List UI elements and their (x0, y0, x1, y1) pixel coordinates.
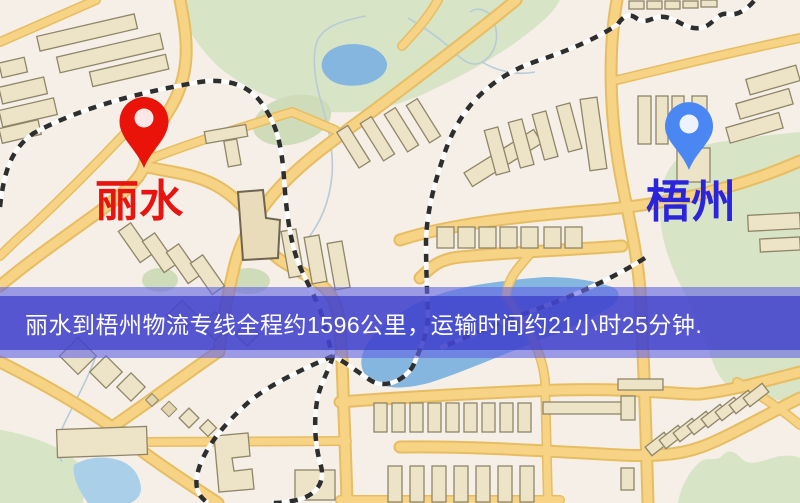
route-banner-band: 丽水到梧州物流专线全程约1596公里，运输时间约21小时25分钟. (0, 296, 800, 350)
route-banner: 丽水到梧州物流专线全程约1596公里，运输时间约21小时25分钟. (0, 287, 800, 358)
destination-pin-hole (680, 115, 699, 134)
origin-pin-hole (135, 109, 154, 128)
origin-label: 丽水 (95, 177, 184, 226)
map-canvas[interactable]: 梧州 丽水 (0, 0, 800, 503)
route-banner-text: 丽水到梧州物流专线全程约1596公里，运输时间约21小时25分钟. (0, 306, 702, 340)
destination-label: 梧州 (646, 176, 736, 227)
map-screenshot: 梧州 丽水 丽水到梧州物流专线全程约1596公里，运输时间约21小时25分钟. (0, 0, 800, 503)
